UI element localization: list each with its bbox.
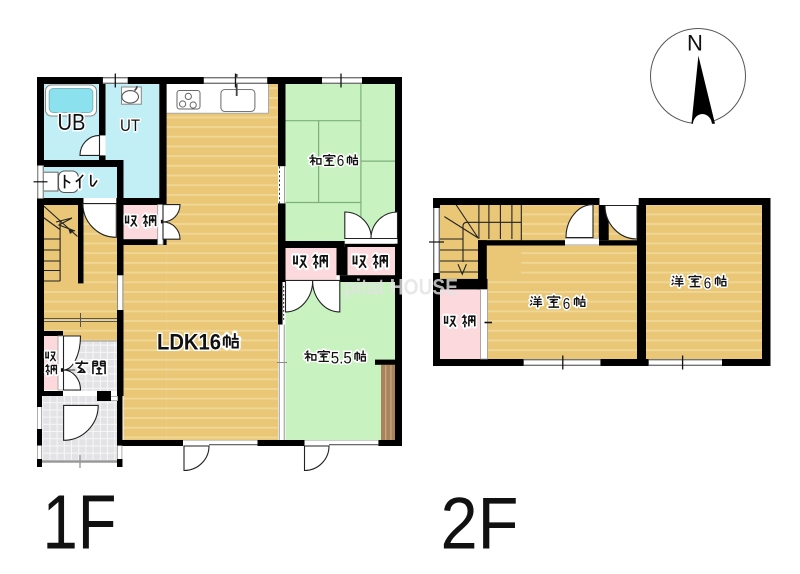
svg-text:1F: 1F — [43, 479, 117, 565]
svg-text:6: 6 — [337, 153, 345, 170]
svg-text:UB: UB — [58, 109, 86, 135]
svg-text:UT: UT — [120, 116, 140, 135]
svg-text:5.5: 5.5 — [331, 349, 352, 368]
svg-text:6: 6 — [563, 296, 571, 313]
svg-text:N: N — [687, 31, 703, 56]
svg-text:2F: 2F — [441, 483, 519, 564]
svg-text:pitat HOUSE: pitat HOUSE — [344, 275, 458, 300]
svg-text:LDK16: LDK16 — [157, 330, 221, 355]
svg-text:6: 6 — [704, 275, 712, 292]
